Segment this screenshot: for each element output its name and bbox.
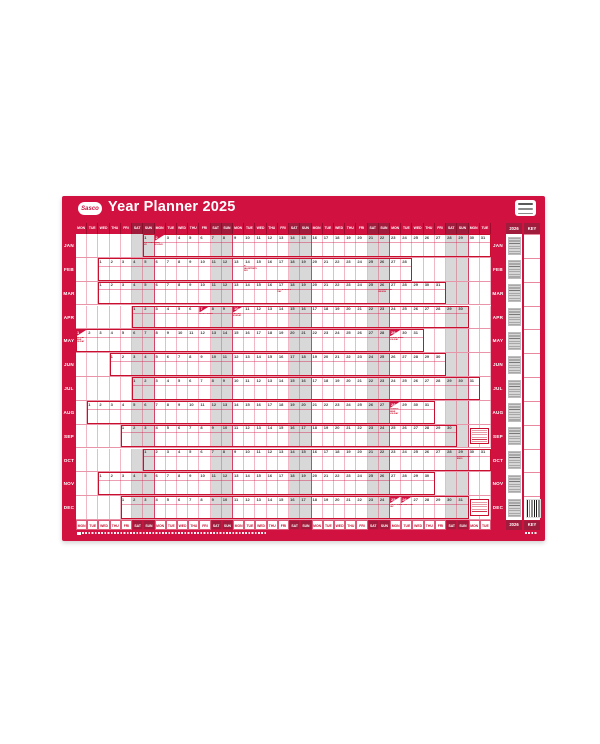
day-number: 5 bbox=[156, 354, 158, 359]
day-number: 6 bbox=[178, 497, 180, 502]
month-label-left: AUG bbox=[63, 410, 75, 415]
day-cell bbox=[480, 306, 491, 329]
day-number: 10 bbox=[212, 354, 216, 359]
day-header-top: TUE bbox=[166, 223, 177, 234]
day-number: 3 bbox=[122, 473, 124, 478]
day-number: 9 bbox=[167, 330, 169, 335]
day-header-top: TUE bbox=[244, 223, 255, 234]
day-number: 14 bbox=[290, 449, 294, 454]
day-number: 27 bbox=[425, 306, 429, 311]
day-number: 9 bbox=[212, 425, 214, 430]
day-number: 29 bbox=[447, 378, 451, 383]
day-cell bbox=[424, 258, 435, 281]
day-number: 7 bbox=[144, 330, 146, 335]
day-number: 14 bbox=[245, 259, 249, 264]
mini-calendar-2026 bbox=[508, 403, 521, 421]
planner-grid: MONMONTUETUEWEDWEDTHUTHUFRIFRISATSATSUNS… bbox=[62, 196, 545, 541]
day-number: 13 bbox=[279, 449, 283, 454]
day-number: 26 bbox=[380, 259, 384, 264]
day-number: 7 bbox=[189, 497, 191, 502]
day-cell bbox=[87, 377, 98, 400]
day-number: 22 bbox=[335, 259, 339, 264]
year-planner-poster: Sasco Year Planner 2025 MONMONTUETUEWEDW… bbox=[62, 196, 545, 541]
day-number: 24 bbox=[335, 330, 339, 335]
day-number: 2 bbox=[144, 378, 146, 383]
day-number: 28 bbox=[413, 354, 417, 359]
day-header-top: MON bbox=[469, 223, 480, 234]
day-number: 9 bbox=[189, 259, 191, 264]
day-number: 21 bbox=[369, 235, 373, 240]
day-header-bottom: FRI bbox=[121, 520, 132, 530]
day-number: 1 bbox=[77, 330, 79, 335]
day-number: 16 bbox=[245, 330, 249, 335]
day-cell bbox=[132, 234, 143, 257]
day-header-top: TUE bbox=[480, 223, 491, 234]
key-row-line bbox=[524, 496, 540, 497]
day-number: 19 bbox=[279, 330, 283, 335]
day-header-top: SAT bbox=[368, 223, 379, 234]
day-number: 3 bbox=[111, 402, 113, 407]
day-header-top: SAT bbox=[289, 223, 300, 234]
day-cell bbox=[435, 329, 446, 352]
holiday-caption: SPRING BANK HOLIDAY bbox=[390, 337, 404, 341]
day-number: 13 bbox=[256, 497, 260, 502]
day-number: 28 bbox=[380, 330, 384, 335]
day-number: 30 bbox=[470, 449, 474, 454]
day-number: 7 bbox=[212, 235, 214, 240]
key-row-line bbox=[524, 520, 540, 521]
day-number: 3 bbox=[167, 235, 169, 240]
day-header-bottom: WED bbox=[412, 520, 423, 530]
mini-calendar-2026 bbox=[508, 260, 521, 278]
day-header-bottom: MON bbox=[155, 520, 166, 530]
day-number: 19 bbox=[346, 235, 350, 240]
day-number: 25 bbox=[380, 354, 384, 359]
day-header-bottom: SAT bbox=[132, 520, 143, 530]
day-cell bbox=[446, 472, 457, 495]
day-number: 15 bbox=[256, 473, 260, 478]
day-number: 2 bbox=[144, 306, 146, 311]
day-number: 15 bbox=[279, 425, 283, 430]
day-number: 4 bbox=[167, 306, 169, 311]
day-number: 19 bbox=[301, 282, 305, 287]
day-number: 22 bbox=[369, 306, 373, 311]
day-number: 25 bbox=[391, 425, 395, 430]
day-number: 26 bbox=[357, 330, 361, 335]
mini-calendar-2026 bbox=[508, 475, 521, 493]
day-cell bbox=[480, 329, 491, 352]
day-number: 26 bbox=[380, 473, 384, 478]
day-number: 3 bbox=[99, 330, 101, 335]
day-number: 6 bbox=[133, 330, 135, 335]
day-number: 31 bbox=[413, 330, 417, 335]
day-number: 20 bbox=[301, 402, 305, 407]
day-number: 23 bbox=[369, 497, 373, 502]
day-number: 28 bbox=[402, 259, 406, 264]
day-number: 4 bbox=[178, 449, 180, 454]
day-cell bbox=[457, 329, 468, 352]
day-number: 22 bbox=[335, 282, 339, 287]
day-number: 31 bbox=[458, 497, 462, 502]
day-number: 18 bbox=[301, 354, 305, 359]
day-number: 15 bbox=[301, 449, 305, 454]
day-number: 12 bbox=[234, 354, 238, 359]
day-number: 15 bbox=[290, 378, 294, 383]
day-number: 1 bbox=[133, 378, 135, 383]
day-cell bbox=[480, 353, 491, 376]
day-number: 18 bbox=[313, 497, 317, 502]
day-number: 27 bbox=[391, 473, 395, 478]
day-number: 28 bbox=[436, 306, 440, 311]
day-number: 21 bbox=[346, 497, 350, 502]
day-number: 1 bbox=[99, 473, 101, 478]
day-number: 5 bbox=[144, 473, 146, 478]
day-number: 16 bbox=[301, 378, 305, 383]
day-header-top: WED bbox=[412, 223, 423, 234]
day-number: 3 bbox=[133, 354, 135, 359]
key-row-line bbox=[524, 377, 540, 378]
day-number: 23 bbox=[391, 449, 395, 454]
day-number: 11 bbox=[245, 306, 249, 311]
holiday-caption: MAY DAY BANK HOLIDAY bbox=[76, 337, 90, 344]
day-number: 19 bbox=[324, 497, 328, 502]
day-cell bbox=[446, 282, 457, 305]
key-code-fine-print bbox=[525, 532, 538, 534]
day-number: 19 bbox=[313, 354, 317, 359]
day-cell bbox=[121, 234, 132, 257]
month-row: NEW YEAR'S DAYBANK HOLIDAY12345678910111… bbox=[76, 234, 491, 258]
day-cell bbox=[110, 449, 121, 472]
month-row: CHRISTMAS DAYBOXING DAY12345678910111213… bbox=[76, 496, 491, 520]
day-number: 11 bbox=[256, 235, 260, 240]
day-number: 13 bbox=[234, 282, 238, 287]
day-header-bottom: FRI bbox=[356, 520, 367, 530]
day-header-top: SUN bbox=[222, 223, 233, 234]
day-number: 21 bbox=[324, 282, 328, 287]
day-number: 19 bbox=[324, 425, 328, 430]
day-number: 8 bbox=[212, 306, 214, 311]
day-number: 11 bbox=[212, 259, 216, 264]
mini-calendar-2026 bbox=[508, 499, 521, 517]
day-number: 20 bbox=[290, 330, 294, 335]
day-number: 24 bbox=[391, 306, 395, 311]
day-number: 26 bbox=[402, 497, 406, 502]
day-number: 9 bbox=[189, 282, 191, 287]
day-number: 11 bbox=[234, 425, 238, 430]
day-header-top: THU bbox=[424, 223, 435, 234]
day-number: 26 bbox=[425, 235, 429, 240]
day-number: 17 bbox=[290, 354, 294, 359]
day-number: 29 bbox=[447, 306, 451, 311]
day-number: 1 bbox=[111, 354, 113, 359]
day-number: 7 bbox=[200, 306, 202, 311]
day-header-top: FRI bbox=[278, 223, 289, 234]
month-label-left: APR bbox=[63, 315, 75, 320]
day-header-top: TUE bbox=[323, 223, 334, 234]
day-number: 16 bbox=[279, 354, 283, 359]
day-number: 24 bbox=[369, 354, 373, 359]
day-number: 24 bbox=[357, 473, 361, 478]
day-number: 1 bbox=[99, 259, 101, 264]
day-number: 21 bbox=[335, 354, 339, 359]
day-number: 6 bbox=[156, 282, 158, 287]
day-number: 5 bbox=[189, 235, 191, 240]
day-number: 12 bbox=[268, 235, 272, 240]
day-number: 12 bbox=[200, 330, 204, 335]
day-number: 3 bbox=[156, 306, 158, 311]
day-number: 25 bbox=[413, 449, 417, 454]
day-number: 28 bbox=[402, 282, 406, 287]
day-number: 21 bbox=[357, 306, 361, 311]
day-number: 14 bbox=[279, 306, 283, 311]
day-number: 21 bbox=[324, 259, 328, 264]
day-number: 19 bbox=[335, 378, 339, 383]
day-number: 30 bbox=[425, 473, 429, 478]
month-label-left: FEB bbox=[63, 267, 75, 272]
day-number: 15 bbox=[301, 235, 305, 240]
mini-calendar-2026 bbox=[508, 380, 521, 398]
day-number: 12 bbox=[223, 282, 227, 287]
day-cell bbox=[457, 472, 468, 495]
day-number: 23 bbox=[380, 306, 384, 311]
day-header-bottom: SUN bbox=[457, 520, 468, 530]
day-cell bbox=[412, 258, 423, 281]
day-number: 6 bbox=[156, 473, 158, 478]
day-number: 13 bbox=[245, 354, 249, 359]
day-cell bbox=[469, 472, 480, 495]
day-header-bottom: THU bbox=[188, 520, 199, 530]
day-number: 3 bbox=[156, 378, 158, 383]
day-cell bbox=[76, 306, 87, 329]
day-cell bbox=[480, 401, 491, 424]
day-number: 9 bbox=[223, 306, 225, 311]
day-number: 25 bbox=[369, 282, 373, 287]
month-label-right: MAR bbox=[491, 291, 505, 296]
day-header-top: SAT bbox=[446, 223, 457, 234]
day-number: 8 bbox=[156, 330, 158, 335]
day-number: 1 bbox=[144, 449, 146, 454]
day-number: 1 bbox=[122, 497, 124, 502]
footer-recycle-icon bbox=[77, 532, 81, 536]
day-number: 19 bbox=[335, 306, 339, 311]
mini-calendar-2026 bbox=[508, 237, 521, 255]
month-label-left: JUL bbox=[63, 386, 75, 391]
day-cell bbox=[98, 306, 109, 329]
key-row-line bbox=[524, 401, 540, 402]
day-number: 3 bbox=[122, 282, 124, 287]
day-number: 11 bbox=[245, 378, 249, 383]
day-number: 28 bbox=[447, 449, 451, 454]
day-header-bottom: TUE bbox=[244, 520, 255, 530]
day-cell bbox=[76, 282, 87, 305]
year-2026-header: 2026 bbox=[506, 520, 522, 530]
day-number: 5 bbox=[178, 306, 180, 311]
day-number: 31 bbox=[425, 402, 429, 407]
day-cell bbox=[457, 401, 468, 424]
day-number: 8 bbox=[200, 425, 202, 430]
day-number: 10 bbox=[200, 282, 204, 287]
day-number: 16 bbox=[313, 449, 317, 454]
day-number: 17 bbox=[324, 235, 328, 240]
day-number: 28 bbox=[391, 402, 395, 407]
day-header-bottom: FRI bbox=[435, 520, 446, 530]
day-number: 30 bbox=[458, 378, 462, 383]
day-header-top: SUN bbox=[143, 223, 154, 234]
day-number: 24 bbox=[346, 402, 350, 407]
day-number: 4 bbox=[133, 473, 135, 478]
day-number: 28 bbox=[447, 235, 451, 240]
day-number: 12 bbox=[245, 497, 249, 502]
day-number: 29 bbox=[402, 402, 406, 407]
day-header-top: TUE bbox=[401, 223, 412, 234]
month-row: ST PATRICK'S DAYSUMMERTIME BEGINS1234567… bbox=[76, 282, 491, 306]
day-header-top: MON bbox=[233, 223, 244, 234]
day-number: 20 bbox=[346, 306, 350, 311]
day-number: 4 bbox=[122, 402, 124, 407]
day-header-top: FRI bbox=[121, 223, 132, 234]
day-number: 24 bbox=[357, 259, 361, 264]
day-cell bbox=[121, 377, 132, 400]
day-number: 25 bbox=[391, 497, 395, 502]
day-header-bottom: MON bbox=[390, 520, 401, 530]
day-number: 20 bbox=[335, 425, 339, 430]
day-number: 30 bbox=[447, 425, 451, 430]
day-number: 9 bbox=[178, 402, 180, 407]
day-number: 23 bbox=[369, 425, 373, 430]
day-number: 19 bbox=[301, 473, 305, 478]
day-number: 27 bbox=[436, 235, 440, 240]
day-number: 4 bbox=[178, 235, 180, 240]
day-number: 18 bbox=[268, 330, 272, 335]
holiday-caption: SUMMER BANK HOLIDAY bbox=[390, 408, 404, 415]
key-header: KEY bbox=[524, 520, 540, 530]
day-cell bbox=[446, 401, 457, 424]
year-2026-header: 2026 bbox=[506, 223, 522, 234]
day-number: 12 bbox=[256, 378, 260, 383]
day-number: 19 bbox=[301, 259, 305, 264]
day-number: 23 bbox=[346, 282, 350, 287]
day-number: 1 bbox=[133, 306, 135, 311]
day-number: 25 bbox=[402, 378, 406, 383]
day-number: 22 bbox=[346, 354, 350, 359]
day-number: 12 bbox=[212, 402, 216, 407]
day-number: 14 bbox=[268, 425, 272, 430]
day-number: 29 bbox=[425, 354, 429, 359]
mini-calendar-2026 bbox=[508, 332, 521, 350]
day-number: 20 bbox=[313, 259, 317, 264]
mini-calendar-2026 bbox=[508, 427, 521, 445]
day-cell bbox=[480, 377, 491, 400]
fine-print-note-box bbox=[470, 499, 490, 516]
day-header-bottom: THU bbox=[110, 520, 121, 530]
day-header-top: THU bbox=[188, 223, 199, 234]
day-number: 2 bbox=[122, 354, 124, 359]
day-header-bottom: SAT bbox=[211, 520, 222, 530]
day-number: 10 bbox=[223, 497, 227, 502]
day-cell bbox=[110, 306, 121, 329]
day-number: 16 bbox=[313, 235, 317, 240]
day-cell bbox=[76, 425, 87, 448]
month-label-left: NOV bbox=[63, 481, 75, 486]
month-label-right: APR bbox=[491, 315, 505, 320]
day-number: 26 bbox=[369, 402, 373, 407]
day-number: 15 bbox=[256, 259, 260, 264]
day-cell bbox=[76, 496, 87, 519]
key-row-line bbox=[524, 425, 540, 426]
day-number: 30 bbox=[458, 306, 462, 311]
day-cell bbox=[76, 472, 87, 495]
day-number: 2 bbox=[99, 402, 101, 407]
day-number: 13 bbox=[256, 425, 260, 430]
day-number: 9 bbox=[234, 235, 236, 240]
day-number: 19 bbox=[290, 402, 294, 407]
day-header-bottom: TUE bbox=[166, 520, 177, 530]
day-number: 18 bbox=[324, 378, 328, 383]
day-number: 8 bbox=[223, 449, 225, 454]
day-number: 8 bbox=[178, 259, 180, 264]
month-row: 1234567891011121314151617181920212223242… bbox=[76, 377, 491, 401]
day-number: 17 bbox=[279, 473, 283, 478]
day-number: 19 bbox=[346, 449, 350, 454]
day-cell bbox=[469, 401, 480, 424]
day-number: 31 bbox=[481, 449, 485, 454]
day-number: 3 bbox=[122, 259, 124, 264]
day-number: 11 bbox=[212, 282, 216, 287]
day-number: 4 bbox=[111, 330, 113, 335]
day-cell bbox=[110, 234, 121, 257]
day-number: 17 bbox=[324, 449, 328, 454]
day-header-bottom: FRI bbox=[278, 520, 289, 530]
day-number: 23 bbox=[380, 378, 384, 383]
day-cell bbox=[457, 282, 468, 305]
holiday-caption: SUMMERTIME BEGINS bbox=[378, 289, 392, 293]
day-number: 4 bbox=[144, 354, 146, 359]
day-number: 3 bbox=[144, 497, 146, 502]
day-header-bottom: SAT bbox=[446, 520, 457, 530]
day-number: 6 bbox=[178, 425, 180, 430]
day-number: 20 bbox=[324, 354, 328, 359]
day-number: 16 bbox=[301, 306, 305, 311]
day-header-bottom: SUN bbox=[300, 520, 311, 530]
day-header-bottom: WED bbox=[255, 520, 266, 530]
day-number: 15 bbox=[245, 402, 249, 407]
day-number: 3 bbox=[167, 449, 169, 454]
day-number: 17 bbox=[313, 306, 317, 311]
day-cell bbox=[76, 401, 87, 424]
day-header-bottom: SUN bbox=[143, 520, 154, 530]
day-cell bbox=[110, 377, 121, 400]
day-cell bbox=[446, 329, 457, 352]
day-number: 16 bbox=[290, 425, 294, 430]
day-header-top: SUN bbox=[379, 223, 390, 234]
day-number: 27 bbox=[391, 259, 395, 264]
day-cell bbox=[132, 449, 143, 472]
day-number: 30 bbox=[425, 282, 429, 287]
day-number: 21 bbox=[369, 449, 373, 454]
day-number: 15 bbox=[268, 354, 272, 359]
day-number: 11 bbox=[212, 473, 216, 478]
day-cell bbox=[98, 353, 109, 376]
day-number: 24 bbox=[380, 497, 384, 502]
day-number: 15 bbox=[279, 497, 283, 502]
day-number: 30 bbox=[413, 402, 417, 407]
month-row: MAY DAY BANK HOLIDAYSPRING BANK HOLIDAY1… bbox=[76, 329, 491, 353]
day-number: 11 bbox=[223, 354, 227, 359]
day-number: 27 bbox=[436, 449, 440, 454]
day-number: 2 bbox=[133, 425, 135, 430]
day-number: 14 bbox=[223, 330, 227, 335]
key-row-line bbox=[524, 449, 540, 450]
